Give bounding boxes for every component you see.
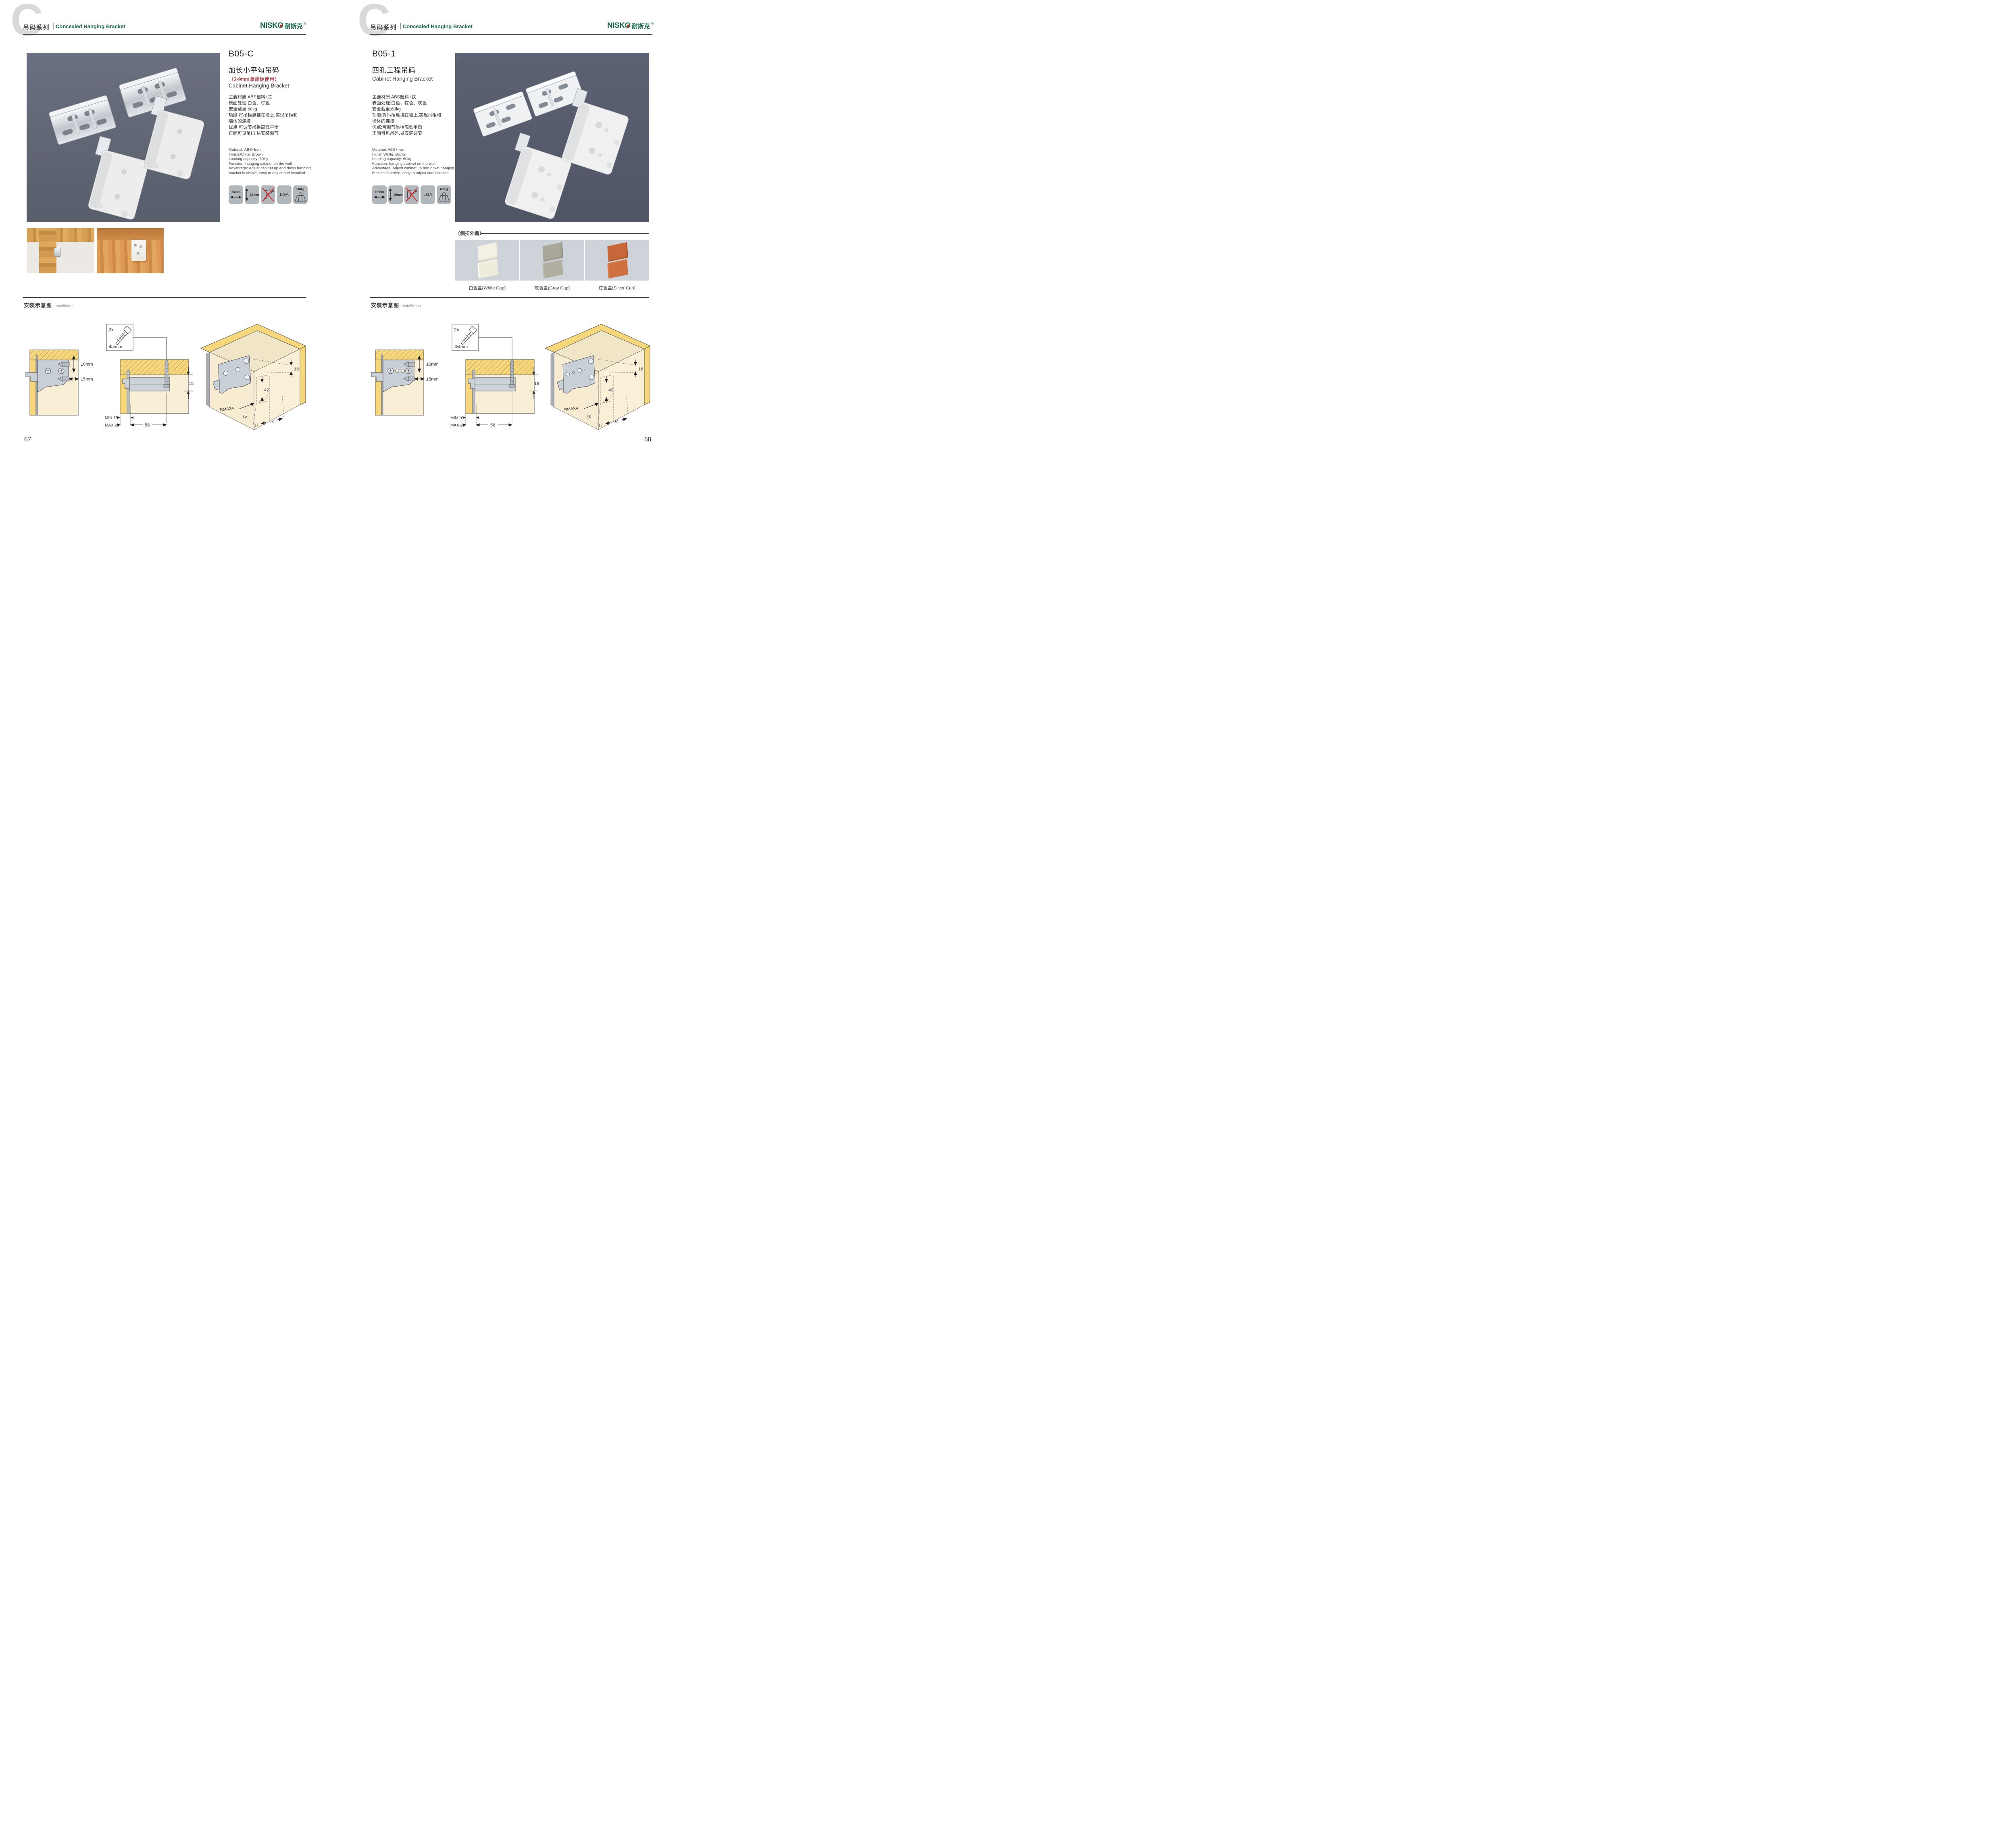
metal-hook	[54, 248, 60, 257]
series-title-en: Concealed Hanging Bracket	[403, 23, 473, 29]
spec-line: 优点:可调节吊柜高低平衡	[372, 125, 467, 131]
icon-no-drill	[404, 185, 419, 204]
no-drill-icon	[405, 187, 418, 202]
icon-height-adjust: 10mm	[245, 185, 259, 204]
spec-line: 优点:可调节吊柜高低平衡	[229, 125, 323, 131]
spec-line: 正面可见吊码,易安装调节	[229, 131, 323, 137]
spec-line: Advantage: Adjust cabinet up and down ha…	[229, 166, 323, 171]
lga-label: LGA	[423, 192, 432, 197]
header-divider	[53, 23, 54, 29]
product-name-en: Cabinet Hanging Bracket	[229, 83, 289, 89]
screw-diameter-label: Φ4mm	[454, 345, 468, 349]
dim-min-label: MIN.15	[105, 416, 118, 420]
spec-line: Material: ABS+Iron	[372, 148, 467, 152]
lga-label: LGA	[280, 192, 289, 197]
header-divider	[400, 23, 401, 29]
page-left: C 吊码系列 Concealed Hanging Bracket NISKO 耐…	[0, 0, 338, 462]
icon-height-adjust: 10mm	[388, 185, 403, 204]
series-watermark-letter: C	[358, 0, 390, 43]
height-adjust-label: 10mm	[393, 193, 402, 197]
dim-32-label: 32	[269, 419, 274, 424]
catalog-spread: C 吊码系列 Concealed Hanging Bracket NISKO 耐…	[0, 0, 676, 462]
feature-icon-strip: 15mm 10mm	[372, 185, 451, 204]
width-adjust-label: 15mm	[231, 190, 240, 194]
load-label: 60Kg	[296, 187, 304, 191]
specs-cn: 主要材质:ABS塑料+铁 表面处理:白色、棕色、灰色 安全载重:60kg 功能:…	[372, 94, 467, 137]
spec-line: bracket is visible, easy to adjust and i…	[372, 171, 467, 176]
spec-line: 表面处理:白色、棕色	[229, 100, 323, 106]
cap-label-gray: 灰色盖(Gray Cap)	[520, 285, 584, 291]
registered-mark: ®	[651, 22, 654, 25]
install-photo-hook	[27, 228, 94, 273]
product-photo-b05c	[27, 53, 220, 222]
spec-line: Advantage: Adjust cabinet up and down ha…	[372, 166, 467, 171]
icon-width-adjust: 15mm	[229, 185, 243, 204]
install-section-rule	[23, 297, 306, 298]
cap-piece	[607, 242, 628, 262]
dim-horizontal-label: 15mm	[426, 377, 439, 382]
cap-piece	[477, 259, 498, 279]
header-rule	[23, 34, 306, 35]
vertical-arrow-icon	[245, 188, 249, 201]
specs-en: Material: ABS+Iron Finish:White, Brown L…	[229, 148, 323, 176]
dim-58-label: 58	[490, 423, 495, 427]
product-name-en: Cabinet Hanging Bracket	[372, 76, 433, 82]
diagram-perspective: 16 42 RMAX4 16 17 32	[198, 317, 308, 434]
screw-count-label: 2x	[454, 327, 459, 333]
cap-photo-gray	[520, 240, 584, 281]
series-title-cn: 吊码系列	[23, 23, 50, 31]
dim-vertical-label: 10mm	[81, 362, 93, 367]
dim-17-label: 17	[598, 423, 603, 428]
caps-section-rule	[481, 233, 649, 234]
install-section-rule	[370, 297, 649, 298]
spec-line: 安全载重:60kg	[372, 106, 467, 112]
spec-line: 墙体的连接	[372, 119, 467, 125]
install-title-en: Installation	[54, 304, 74, 308]
height-adjust-label: 10mm	[250, 193, 259, 197]
spec-line: Finish:White, Brown	[372, 152, 467, 157]
dim-58-label: 58	[145, 423, 150, 427]
install-photo-bracket	[97, 228, 164, 273]
product-name-cn: 四孔工程吊码	[372, 64, 416, 75]
weight-icon	[437, 192, 450, 202]
product-code: B05-C	[229, 49, 254, 59]
series-watermark-letter: C	[10, 0, 43, 43]
cap-label-brown: 棕色盖(Silver Cap)	[585, 285, 649, 291]
diagram-side-section: 10mm 15mm	[371, 334, 447, 422]
spec-line: 主要材质:ABS塑料+铁	[372, 94, 467, 100]
dim-16-top-label: 16	[294, 367, 299, 372]
cap-piece	[542, 259, 563, 279]
spec-line: Function: hanging cabinet on the wall	[229, 162, 323, 166]
icon-lga: LGA	[421, 185, 435, 204]
width-adjust-label: 15mm	[375, 190, 384, 194]
spec-line: Function: hanging cabinet on the wall	[372, 162, 467, 166]
install-title-cn: 安装示意图	[24, 301, 52, 309]
icon-load: 60Kg	[437, 185, 451, 204]
install-section-title: 安装示意图 Installation	[24, 301, 74, 309]
wood-beam	[27, 228, 94, 242]
thickness-note: （3-9mm厚背板使用）	[229, 75, 279, 83]
dim-18-label: 18	[189, 381, 194, 386]
spec-line: 功能:将吊柜悬挂在墙上,实现吊柜和	[372, 112, 467, 119]
diagram-screw-section: 2x Φ4mm	[104, 322, 195, 427]
product-code: B05-1	[372, 49, 396, 59]
spec-line: 正面可见吊码,易安装调节	[372, 131, 467, 137]
install-section-title: 安装示意图 Installation	[371, 301, 421, 309]
icon-no-drill	[261, 185, 275, 204]
install-title-en: Installation	[402, 304, 421, 308]
spec-line: Material: ABS+Iron	[229, 148, 323, 152]
cap-photo-white	[455, 240, 519, 281]
white-bracket-installed	[131, 240, 146, 261]
series-title-en: Concealed Hanging Bracket	[56, 23, 125, 29]
dim-42-label: 42	[608, 388, 613, 393]
cap-piece	[607, 259, 628, 279]
page-right: C 吊码系列 Concealed Hanging Bracket NISKO 耐…	[338, 0, 676, 462]
vertical-arrow-icon	[388, 188, 392, 201]
diagram-perspective: 16 42 RMAX4 16 17 32	[542, 317, 653, 434]
icon-width-adjust: 15mm	[372, 185, 387, 204]
dim-horizontal-label: 15mm	[81, 377, 93, 382]
brand-dot-icon	[627, 25, 629, 27]
specs-en: Material: ABS+Iron Finish:White, Brown L…	[372, 148, 467, 176]
header-rule	[370, 34, 652, 35]
cap-piece	[542, 242, 563, 262]
horizontal-arrow-icon	[230, 195, 242, 199]
brand-name-cn: 耐斯克	[632, 22, 650, 30]
brand-logo: NISKO 耐斯克 ®	[260, 21, 306, 30]
spec-line: bracket is visible, easy to adjust and i…	[229, 171, 323, 176]
dim-min-label: MIN.10	[450, 416, 464, 420]
brand-logo: NISKO 耐斯克 ®	[607, 21, 654, 30]
spec-line: 安全载重:60kg	[229, 106, 323, 112]
load-label: 60Kg	[440, 187, 448, 191]
registered-mark: ®	[304, 22, 306, 25]
no-drill-icon	[262, 187, 275, 202]
page-number: 68	[644, 435, 651, 443]
product-photo-b051	[455, 53, 649, 222]
weight-icon	[294, 192, 307, 202]
cap-piece	[477, 242, 498, 262]
screw-count-label: 2x	[108, 327, 114, 333]
screw-diameter-label: Φ4mm	[109, 345, 122, 349]
spec-line: Loading capacity: 60kg	[229, 157, 323, 162]
caps-section-title: （侧扣外盖）	[455, 230, 484, 237]
brand-name-cn: 耐斯克	[285, 22, 303, 30]
dim-16-top-label: 16	[638, 367, 643, 372]
diagram-screw-section: 2x Φ4mm	[450, 322, 540, 427]
spec-line: 主要材质:ABS塑料+铁	[229, 94, 323, 100]
spec-line: Finish:White, Brown	[229, 152, 323, 157]
diagram-side-section: 10mm 15mm	[25, 334, 102, 422]
install-title-cn: 安装示意图	[371, 301, 399, 309]
brand-dot-icon	[280, 25, 282, 27]
spec-line: Loading capacity: 60kg	[372, 157, 467, 162]
horizontal-arrow-icon	[374, 195, 385, 199]
product-name-cn: 加长小平勾吊码	[229, 64, 279, 75]
page-number: 67	[24, 435, 31, 443]
feature-icon-strip: 15mm 10mm	[229, 185, 308, 204]
icon-load: 60Kg	[293, 185, 308, 204]
cap-photo-brown	[585, 240, 649, 281]
spec-line: 表面处理:白色、棕色、灰色	[372, 100, 467, 106]
cap-label-white: 白色盖(White Cap)	[455, 285, 519, 291]
dim-18-label: 18	[534, 381, 539, 386]
icon-lga: LGA	[277, 185, 292, 204]
specs-cn: 主要材质:ABS塑料+铁 表面处理:白色、棕色 安全载重:60kg 功能:将吊柜…	[229, 94, 323, 137]
spec-line: 墙体的连接	[229, 119, 323, 125]
dim-vertical-label: 10mm	[426, 362, 439, 367]
series-title-cn: 吊码系列	[370, 23, 397, 31]
spec-line: 功能:将吊柜悬挂在墙上,实现吊柜和	[229, 112, 323, 119]
dim-32-label: 32	[614, 419, 619, 424]
dim-17-label: 17	[254, 423, 259, 428]
dim-42-label: 42	[264, 388, 269, 393]
